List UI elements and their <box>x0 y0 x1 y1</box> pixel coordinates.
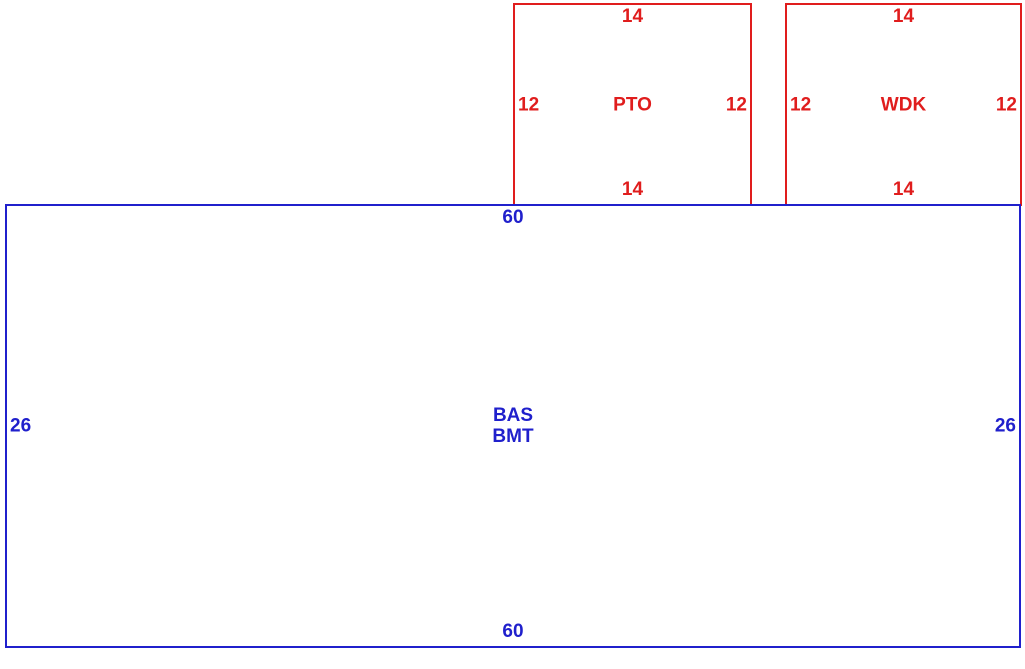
pto-dim-left: 12 <box>518 94 539 115</box>
wdk-dim-right: 12 <box>996 94 1017 115</box>
pto-dim-right: 12 <box>726 94 747 115</box>
bas-dim-right: 26 <box>995 416 1016 437</box>
area-wdk[interactable]: 14 12 12 14 WDK <box>785 3 1022 206</box>
bas-bmt-area-label: BAS BMT <box>492 405 533 447</box>
bas-label: BAS <box>492 405 533 426</box>
bas-dim-bottom: 60 <box>502 621 523 642</box>
bmt-label: BMT <box>492 426 533 447</box>
wdk-dim-top: 14 <box>893 6 914 27</box>
wdk-dim-bottom: 14 <box>893 179 914 200</box>
floor-plan-sketch: 14 12 12 14 PTO 14 12 12 14 WDK 60 26 26… <box>0 0 1025 669</box>
pto-dim-top: 14 <box>622 6 643 27</box>
area-pto[interactable]: 14 12 12 14 PTO <box>513 3 752 206</box>
bas-dim-left: 26 <box>10 416 31 437</box>
bas-dim-top: 60 <box>502 207 523 228</box>
pto-area-label: PTO <box>613 94 652 115</box>
pto-dim-bottom: 14 <box>622 179 643 200</box>
wdk-dim-left: 12 <box>790 94 811 115</box>
area-bas-bmt[interactable]: 60 26 26 60 BAS BMT <box>5 204 1021 648</box>
wdk-area-label: WDK <box>881 94 926 115</box>
